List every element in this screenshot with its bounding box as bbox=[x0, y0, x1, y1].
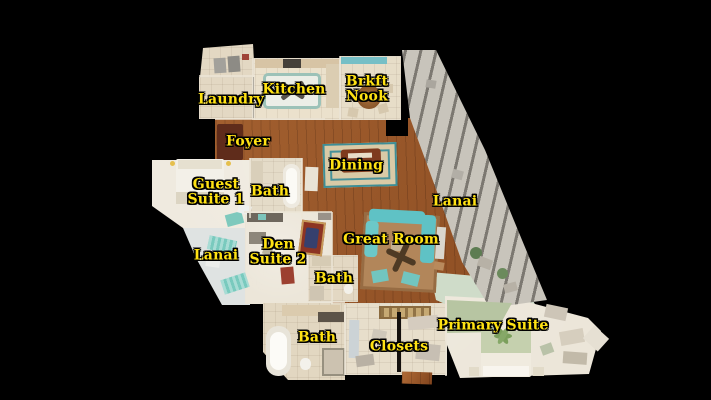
patio-chair bbox=[425, 79, 436, 89]
room-label-closets[interactable]: Closets bbox=[370, 339, 428, 354]
wall-line bbox=[252, 58, 254, 120]
table-lamp-icon bbox=[226, 161, 231, 166]
laundry-bin bbox=[242, 54, 249, 60]
room-label-guest-suite-1[interactable]: Guest Suite 1 bbox=[188, 178, 245, 209]
kitchen-range bbox=[283, 59, 301, 68]
wall-line bbox=[331, 212, 333, 304]
nook-window-view bbox=[341, 57, 387, 64]
wall-line bbox=[301, 158, 303, 218]
primary-bath-cabinet bbox=[318, 312, 344, 322]
wall-line bbox=[339, 56, 341, 120]
wall-line bbox=[263, 301, 345, 303]
room-label-primary-suite[interactable]: Primary Suite bbox=[437, 318, 548, 333]
wall-line bbox=[215, 118, 325, 120]
room-label-lanai-right[interactable]: Lanai bbox=[433, 194, 477, 209]
room-label-guest-bath[interactable]: Bath bbox=[251, 184, 289, 199]
nightstand bbox=[533, 367, 544, 376]
closet-shelving bbox=[407, 315, 438, 331]
dryer bbox=[227, 56, 240, 73]
room-label-lanai-left[interactable]: Lanai bbox=[194, 248, 238, 263]
primary-bathtub-basin bbox=[270, 332, 287, 370]
nook-chair bbox=[347, 107, 358, 118]
primary-shower bbox=[322, 348, 345, 376]
hall-console bbox=[305, 167, 319, 191]
nightstand bbox=[469, 367, 479, 376]
room-label-dining[interactable]: Dining bbox=[329, 158, 383, 173]
den-mat bbox=[280, 266, 294, 284]
primary-bed-pillows bbox=[483, 366, 529, 376]
room-label-foyer[interactable]: Foyer bbox=[226, 134, 270, 149]
wall-line bbox=[344, 305, 346, 375]
room-label-primary-bath[interactable]: Bath bbox=[298, 330, 336, 345]
room-label-kitchen[interactable]: Kitchen bbox=[262, 82, 325, 97]
guest-bed-pillows bbox=[178, 160, 222, 169]
wall-line bbox=[244, 211, 332, 213]
washer bbox=[213, 58, 226, 74]
den-dresser bbox=[318, 212, 332, 220]
side-table bbox=[433, 261, 444, 271]
table-lamp-icon bbox=[170, 161, 175, 166]
room-label-great-room[interactable]: Great Room bbox=[343, 232, 439, 247]
primary-clutter bbox=[563, 351, 588, 365]
kitchen-side-counter bbox=[326, 64, 339, 108]
closet-hall-floor bbox=[402, 371, 432, 384]
den-closet-accent bbox=[258, 214, 266, 220]
room-label-brkft-nook[interactable]: Brkft Nook bbox=[346, 75, 388, 106]
room-label-laundry[interactable]: Laundry bbox=[198, 92, 264, 107]
closet-mirror bbox=[349, 320, 360, 358]
toilet-icon bbox=[300, 358, 311, 370]
den-bath-shower bbox=[310, 286, 324, 300]
room-label-den-suite-2[interactable]: Den Suite 2 bbox=[250, 238, 307, 269]
wall-line bbox=[199, 75, 255, 77]
wall-line bbox=[445, 300, 447, 376]
potted-plant-icon bbox=[497, 268, 508, 279]
room-label-den-bath[interactable]: Bath bbox=[315, 271, 353, 286]
floorplan-canvas[interactable]: Laundry Kitchen Brkft Nook Foyer Dining … bbox=[0, 0, 711, 400]
